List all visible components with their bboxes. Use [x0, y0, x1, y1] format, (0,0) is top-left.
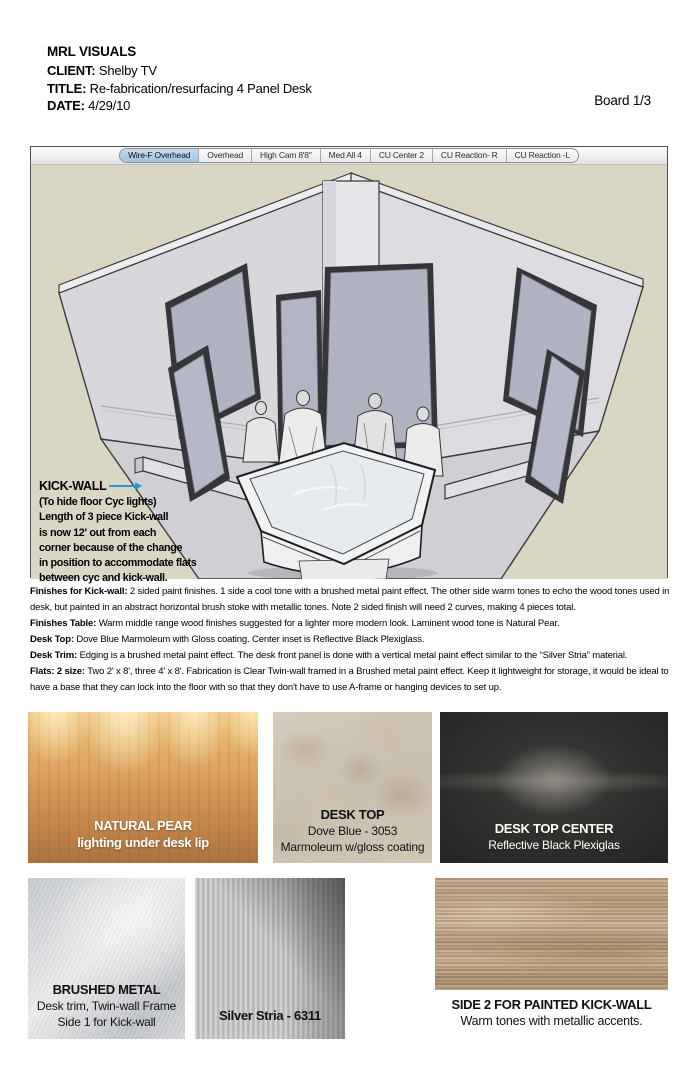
swatch-label: DESK TOP CENTER	[440, 820, 668, 837]
note-flats: Flats: 2 size: Two 2' x 8', three 4' x 8…	[30, 664, 671, 696]
swatch-desk-top-center: DESK TOP CENTER Reflective Black Plexigl…	[440, 712, 668, 863]
scene-render: KICK-WALL (To hide floor Cyc lights) Len…	[31, 165, 667, 579]
scene-tabs: Wire-F Overhead Overhead High Cam 8'8" M…	[119, 148, 579, 163]
swatch-side2-kick-wall	[435, 878, 668, 990]
finish-notes: Finishes for Kick-wall: 2 sided paint fi…	[30, 584, 671, 696]
board-number: Board 1/3	[594, 93, 651, 108]
tab-cu-center-2[interactable]: CU Center 2	[371, 149, 433, 162]
note-desk-trim: Desk Trim: Edging is a brushed metal pai…	[30, 648, 671, 664]
client-value: Shelby TV	[95, 63, 156, 78]
tab-med-all-4[interactable]: Med All 4	[321, 149, 371, 162]
swatch-label: DESK TOP	[273, 806, 432, 823]
annotation-heading: KICK-WALL	[39, 479, 106, 493]
tab-cu-reaction-l[interactable]: CU Reaction -L	[507, 149, 578, 162]
annotation-line: Length of 3 piece Kick-wall	[39, 510, 244, 525]
annotation-arrow-icon	[109, 482, 142, 490]
swatch-sublabel: Desk trim, Twin-wall Frame	[28, 998, 185, 1014]
date-label: DATE:	[47, 98, 85, 113]
annotation-line: corner because of the change	[39, 541, 244, 556]
tab-overhead[interactable]: Overhead	[199, 149, 252, 162]
annotation-line: (To hide floor Cyc lights)	[39, 495, 244, 510]
swatch-sublabel: Marmoleum w/gloss coating	[273, 839, 432, 855]
swatch-sublabel: Warm tones with metallic accents.	[435, 1013, 668, 1029]
swatch-desk-top: DESK TOP Dove Blue - 3053 Marmoleum w/gl…	[273, 712, 432, 863]
swatch-label: NATURAL PEAR	[28, 817, 258, 834]
swatch-silver-stria: Silver Stria - 6311	[195, 878, 345, 1039]
title-label: TITLE:	[47, 81, 86, 96]
tab-cu-reaction-r[interactable]: CU Reaction- R	[433, 149, 507, 162]
swatch-sublabel: lighting under desk lip	[28, 834, 258, 851]
swatch-side2-caption: SIDE 2 FOR PAINTED KICK-WALL Warm tones …	[435, 996, 668, 1029]
date-value: 4/29/10	[85, 98, 130, 113]
tab-high-cam[interactable]: High Cam 8'8"	[252, 149, 321, 162]
annotation-line: is now 12' out from each	[39, 526, 244, 541]
render-viewport: Wire-F Overhead Overhead High Cam 8'8" M…	[30, 146, 668, 578]
board-header: MRL VISUALS CLIENT: Shelby TV TITLE: Re-…	[47, 44, 651, 115]
company-name: MRL VISUALS	[47, 44, 651, 59]
swatch-label: BRUSHED METAL	[28, 981, 185, 998]
swatch-sublabel: Side 1 for Kick-wall	[28, 1014, 185, 1030]
swatch-natural-pear: NATURAL PEAR lighting under desk lip	[28, 712, 258, 863]
swatch-label: Silver Stria - 6311	[195, 1007, 345, 1024]
note-kick-wall: Finishes for Kick-wall: 2 sided paint fi…	[30, 584, 671, 616]
scene-tab-bar: Wire-F Overhead Overhead High Cam 8'8" M…	[31, 147, 667, 165]
client-label: CLIENT:	[47, 63, 95, 78]
title-line: TITLE: Re-fabrication/resurfacing 4 Pane…	[47, 80, 651, 98]
swatch-sublabel: Dove Blue - 3053	[273, 823, 432, 839]
tab-wire-f-overhead[interactable]: Wire-F Overhead	[120, 149, 199, 162]
annotation-line: in position to accommodate flats	[39, 556, 244, 571]
swatch-label: SIDE 2 FOR PAINTED KICK-WALL	[435, 996, 668, 1013]
note-table: Finishes Table: Warm middle range wood f…	[30, 616, 671, 632]
date-line: DATE: 4/29/10	[47, 97, 651, 115]
swatch-brushed-metal: BRUSHED METAL Desk trim, Twin-wall Frame…	[28, 878, 185, 1039]
note-desk-top: Desk Top: Dove Blue Marmoleum with Gloss…	[30, 632, 671, 648]
swatch-sublabel: Reflective Black Plexiglas	[440, 837, 668, 853]
kick-wall-annotation: KICK-WALL (To hide floor Cyc lights) Len…	[39, 479, 244, 587]
client-line: CLIENT: Shelby TV	[47, 62, 651, 80]
title-value: Re-fabrication/resurfacing 4 Panel Desk	[86, 81, 311, 96]
